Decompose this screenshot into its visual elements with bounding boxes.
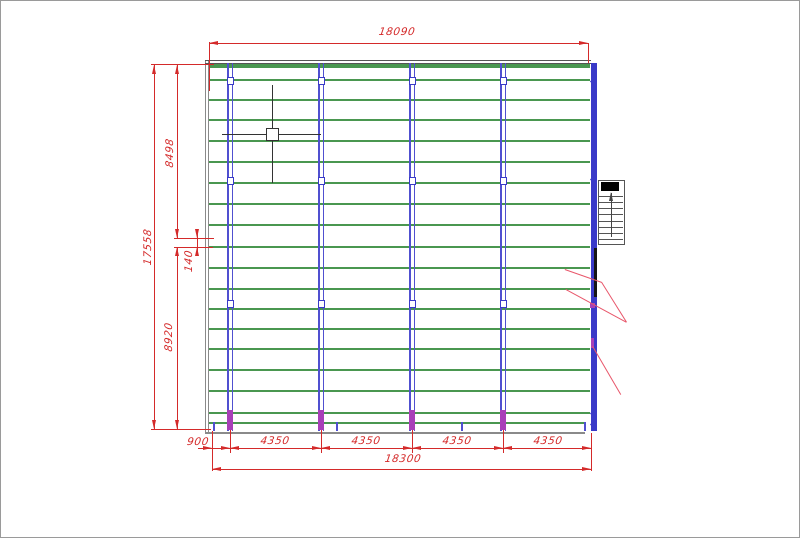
dim-arrow xyxy=(195,229,199,238)
dim-arrow xyxy=(503,446,512,450)
dim-label-left-lower: 8920 xyxy=(163,322,175,353)
dim-arrow xyxy=(175,420,179,429)
purlin-line xyxy=(209,390,590,392)
dim-label-bay-1: 4350 xyxy=(260,435,291,447)
dim-extension-line xyxy=(588,43,589,63)
dim-arrow xyxy=(221,446,230,450)
column-line xyxy=(414,63,416,431)
base-tick xyxy=(336,422,338,431)
dim-extension-line xyxy=(151,64,214,65)
dim-arrow xyxy=(175,65,179,74)
column-base-mark xyxy=(227,410,233,430)
column-node-marker xyxy=(227,77,234,85)
purlin-line xyxy=(209,119,590,121)
dim-arrow xyxy=(494,446,503,450)
dim-label-total-width: 18300 xyxy=(384,453,422,465)
purlin-line xyxy=(209,288,590,290)
dim-extension-line xyxy=(212,431,213,471)
crosshair-pickbox xyxy=(266,128,279,141)
dim-label-bay-3: 4350 xyxy=(442,435,473,447)
purlin-line xyxy=(209,161,590,163)
column-node-marker xyxy=(318,177,325,185)
dim-arrow xyxy=(212,467,221,471)
column-node-marker xyxy=(500,300,507,308)
column-line xyxy=(409,63,411,431)
dim-arrow xyxy=(230,446,239,450)
purlin-line xyxy=(209,369,590,371)
dim-arrow xyxy=(209,41,218,45)
purlin-line xyxy=(209,328,590,330)
frame-top-line xyxy=(205,60,591,61)
base-tick xyxy=(213,422,215,431)
purlin-line xyxy=(209,348,590,350)
column-line xyxy=(323,63,325,431)
top-eave-band xyxy=(209,64,590,68)
column-line xyxy=(500,63,502,431)
purlin-line xyxy=(209,412,590,414)
dim-extension-line xyxy=(591,433,592,471)
purlin-line xyxy=(209,308,590,310)
column-node-marker xyxy=(227,177,234,185)
base-tick xyxy=(461,422,463,431)
dim-label-left-total: 17558 xyxy=(142,228,154,266)
column-base-mark xyxy=(409,410,415,430)
dim-arrow xyxy=(579,41,588,45)
column-line xyxy=(227,63,229,431)
dim-line-top xyxy=(209,43,588,44)
dim-arrow xyxy=(175,247,179,256)
dim-arrow xyxy=(412,446,421,450)
dim-arrow xyxy=(403,446,412,450)
dim-label-bay-2: 4350 xyxy=(351,435,382,447)
dim-extension-line xyxy=(209,42,210,91)
base-tick xyxy=(584,422,586,431)
purlin-line xyxy=(209,182,590,184)
purlin-line xyxy=(209,99,590,101)
frame-bottom-line xyxy=(205,432,585,435)
dim-label-bay-0: 900 xyxy=(186,436,210,448)
stair-symbol-cap xyxy=(601,182,619,191)
dim-arrow xyxy=(195,247,199,256)
dim-line-total xyxy=(212,469,591,470)
column-node-marker xyxy=(227,300,234,308)
dim-line-left-upper xyxy=(177,65,178,238)
dim-extension-line xyxy=(174,238,214,239)
column-line xyxy=(232,63,234,431)
dim-extension-line xyxy=(174,247,213,248)
dim-label-top-width: 18090 xyxy=(378,26,416,38)
column-node-marker xyxy=(318,77,325,85)
dim-label-left-upper: 8498 xyxy=(164,138,176,169)
column-base-mark xyxy=(500,410,506,430)
dim-extension-line xyxy=(151,429,211,430)
dim-arrow xyxy=(582,467,591,471)
dim-arrow xyxy=(321,446,330,450)
column-node-marker xyxy=(318,300,325,308)
stair-direction-arrow xyxy=(609,192,613,201)
purlin-line xyxy=(209,267,590,269)
dim-arrow xyxy=(175,229,179,238)
column-line xyxy=(318,63,320,431)
dim-line-left-total xyxy=(154,65,155,429)
column-node-marker xyxy=(409,300,416,308)
column-node-marker xyxy=(500,177,507,185)
purlin-line xyxy=(209,79,590,81)
dim-label-bay-4: 4350 xyxy=(533,435,564,447)
dim-arrow xyxy=(152,420,156,429)
right-edge-column xyxy=(591,63,597,431)
bottom-eave-band xyxy=(209,422,586,424)
dim-arrow xyxy=(312,446,321,450)
dim-label-left-gap: 140 xyxy=(183,249,195,273)
cad-drawing-canvas[interactable]: 18090 18300 17558 8498 140 8920 900 4350… xyxy=(0,0,800,538)
purlin-line xyxy=(209,246,590,248)
wall-black-segment xyxy=(594,248,597,297)
column-node-marker xyxy=(500,77,507,85)
dim-arrow xyxy=(582,446,591,450)
column-node-marker xyxy=(409,77,416,85)
column-base-mark xyxy=(318,410,324,430)
stair-step-line xyxy=(598,239,623,240)
dim-arrow xyxy=(152,65,156,74)
purlin-line xyxy=(209,203,590,205)
column-node-marker xyxy=(409,177,416,185)
purlin-line xyxy=(209,224,590,226)
dim-line-bays xyxy=(198,448,591,449)
column-line xyxy=(505,63,507,431)
dim-line-left-lower xyxy=(177,247,178,429)
